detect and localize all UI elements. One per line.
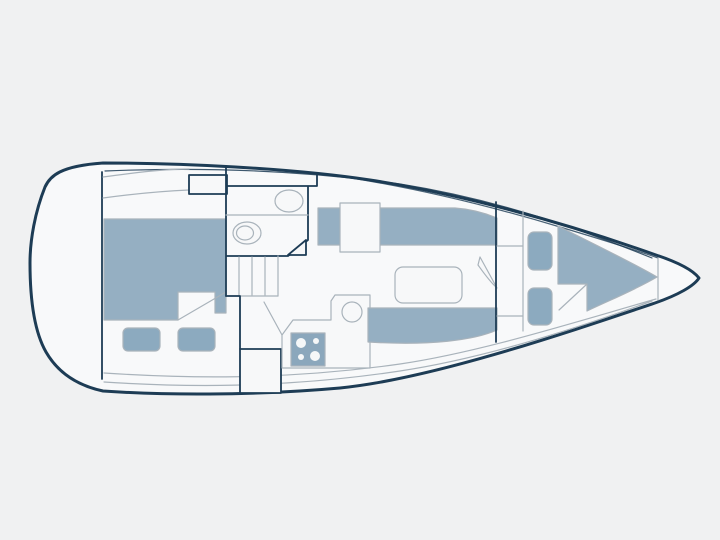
forward-cabin-pillow-upper	[528, 232, 552, 270]
salon-table	[395, 267, 462, 303]
head-toilet-outer	[233, 222, 261, 244]
aft-cabin-pillow-left	[123, 328, 160, 351]
forward-cabin-pillow-lower	[528, 288, 552, 325]
companionway-hatch	[189, 175, 227, 194]
aft-cabin-pillow-right	[178, 328, 215, 351]
boat-floorplan	[0, 0, 720, 540]
galley-stove	[291, 333, 325, 366]
stowage-locker	[240, 349, 281, 393]
galley-sink	[342, 302, 362, 322]
head-sink	[275, 190, 303, 212]
chart-table	[340, 203, 380, 252]
